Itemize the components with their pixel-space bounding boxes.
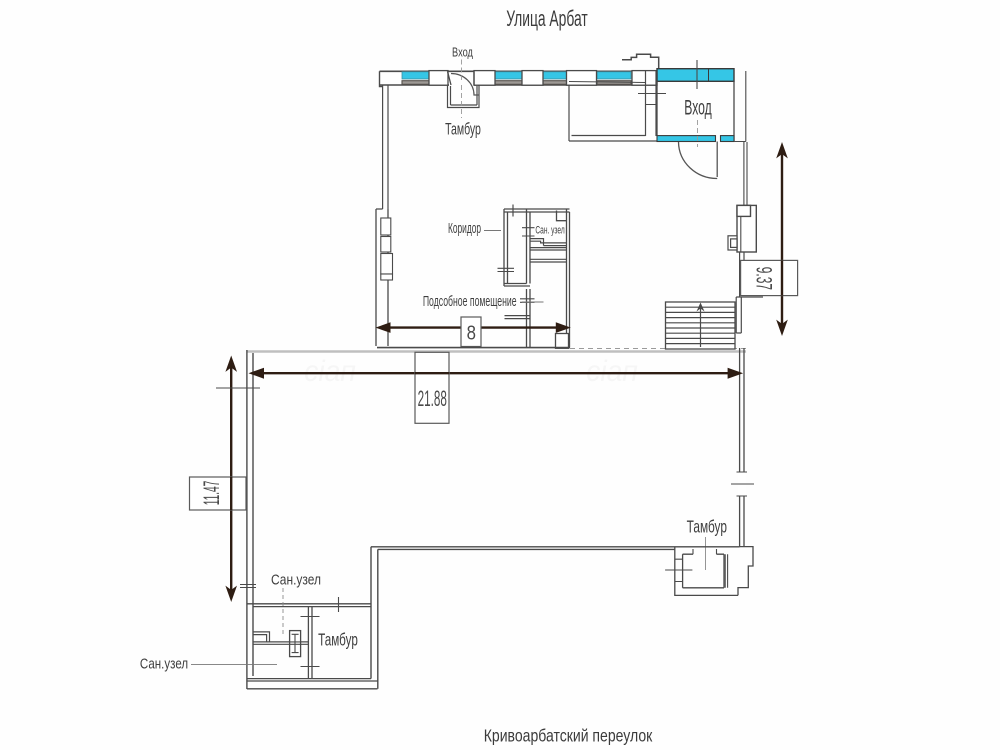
svg-text:Сан.узел: Сан.узел [271,571,321,588]
svg-text:Улица Арбат: Улица Арбат [506,6,588,31]
svg-text:Сан. узел: Сан. узел [535,224,564,236]
svg-text:11.47: 11.47 [199,481,225,506]
svg-text:Коридор: Коридор [448,219,481,236]
svg-text:сіап: сіап [586,355,638,388]
svg-text:сіап: сіап [304,355,356,388]
svg-text:Тамбур: Тамбур [318,630,358,650]
svg-text:Кривоарбатский переулок: Кривоарбатский переулок [484,726,653,746]
svg-text:Сан.узел: Сан.узел [140,655,188,672]
svg-text:8: 8 [467,321,476,344]
svg-text:9.37: 9.37 [751,267,776,290]
svg-text:Вход: Вход [452,46,473,60]
svg-text:Вход: Вход [684,95,712,119]
svg-text:Подсобное помещение: Подсобное помещение [423,293,517,310]
svg-text:21.88: 21.88 [418,386,447,411]
svg-text:Тамбур: Тамбур [445,119,481,138]
svg-text:Тамбур: Тамбур [687,517,727,537]
